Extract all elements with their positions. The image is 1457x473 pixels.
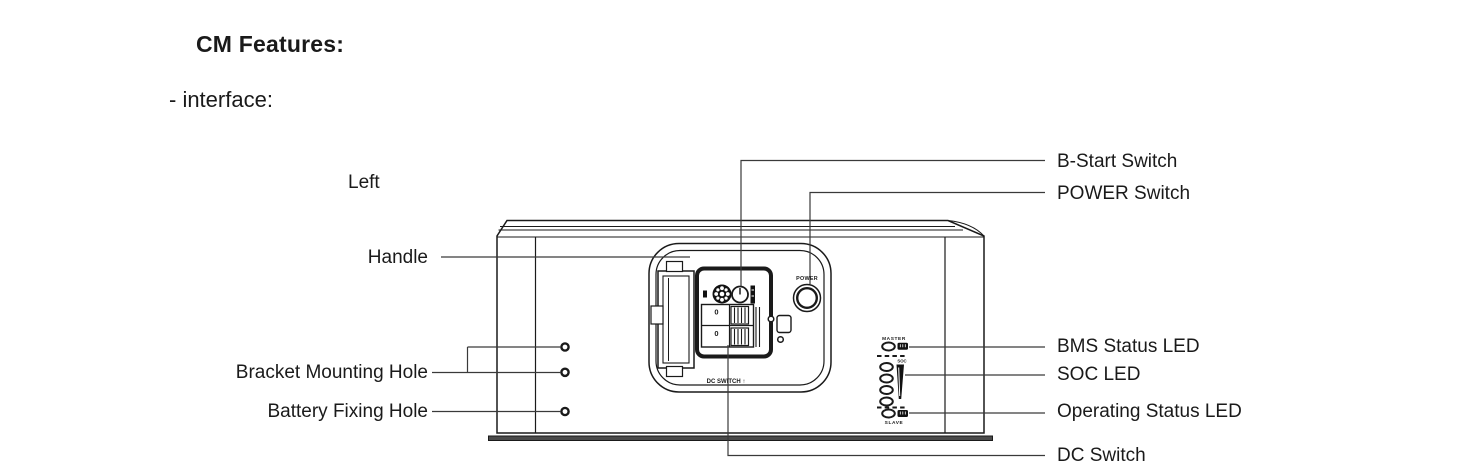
label-bms-status-led: BMS Status LED xyxy=(1057,336,1200,357)
b-start-switch-dial xyxy=(732,287,748,303)
door-top-hinge xyxy=(667,262,683,272)
manual-page: CM Features: - interface: xyxy=(0,0,1457,473)
dc-switch-panel-marking: DC SWITCH ↑ xyxy=(707,379,746,385)
label-b-start-switch: B-Start Switch xyxy=(1057,151,1177,172)
master-port-icon xyxy=(898,343,909,350)
door-latch-tab xyxy=(651,306,663,324)
b-start-connector-icon xyxy=(713,285,732,304)
bracket-mounting-hole-1 xyxy=(561,343,568,350)
screw-hole-2 xyxy=(778,337,784,343)
power-button-marking: POWER xyxy=(796,276,818,282)
breaker-zero-bottom: 0 xyxy=(714,329,718,338)
label-dc-switch: DC Switch xyxy=(1057,445,1146,466)
operating-status-led xyxy=(882,410,895,418)
power-button: POWER xyxy=(794,276,821,312)
bottom-base-band xyxy=(489,436,993,441)
panel-tick-mark xyxy=(703,291,707,298)
terminal-cover-door xyxy=(651,262,694,377)
bms-status-led xyxy=(882,343,895,351)
slave-marking: SLAVE xyxy=(885,420,904,426)
master-marking: MASTER xyxy=(882,336,906,342)
breaker-toggle-top xyxy=(731,307,749,325)
device-diagram: 0 0 DC SWITCH ↑ POWER xyxy=(0,0,1457,473)
door-inner xyxy=(663,276,689,363)
soc-marking: SOC xyxy=(897,359,906,364)
panel-label-strip xyxy=(751,286,756,304)
breaker-toggle-bottom xyxy=(731,328,749,346)
screw-hole-1 xyxy=(768,316,774,322)
label-power-switch: POWER Switch xyxy=(1057,183,1190,204)
label-bracket-mounting-hole: Bracket Mounting Hole xyxy=(236,362,428,383)
dc-breaker: 0 0 xyxy=(702,305,760,348)
switch-panel: 0 0 xyxy=(697,269,771,357)
label-left-view: Left xyxy=(348,172,380,193)
label-handle: Handle xyxy=(368,247,428,268)
cover-catch-tab xyxy=(777,316,791,333)
power-button-face xyxy=(797,288,817,308)
label-soc-led: SOC LED xyxy=(1057,364,1140,385)
label-battery-fixing-hole: Battery Fixing Hole xyxy=(267,401,428,422)
breaker-zero-top: 0 xyxy=(714,308,718,317)
door-bottom-hinge xyxy=(667,367,683,377)
slave-port-icon xyxy=(898,410,909,417)
label-operating-status-led: Operating Status LED xyxy=(1057,401,1242,422)
bracket-mounting-hole-2 xyxy=(561,369,568,376)
battery-fixing-hole xyxy=(561,408,568,415)
